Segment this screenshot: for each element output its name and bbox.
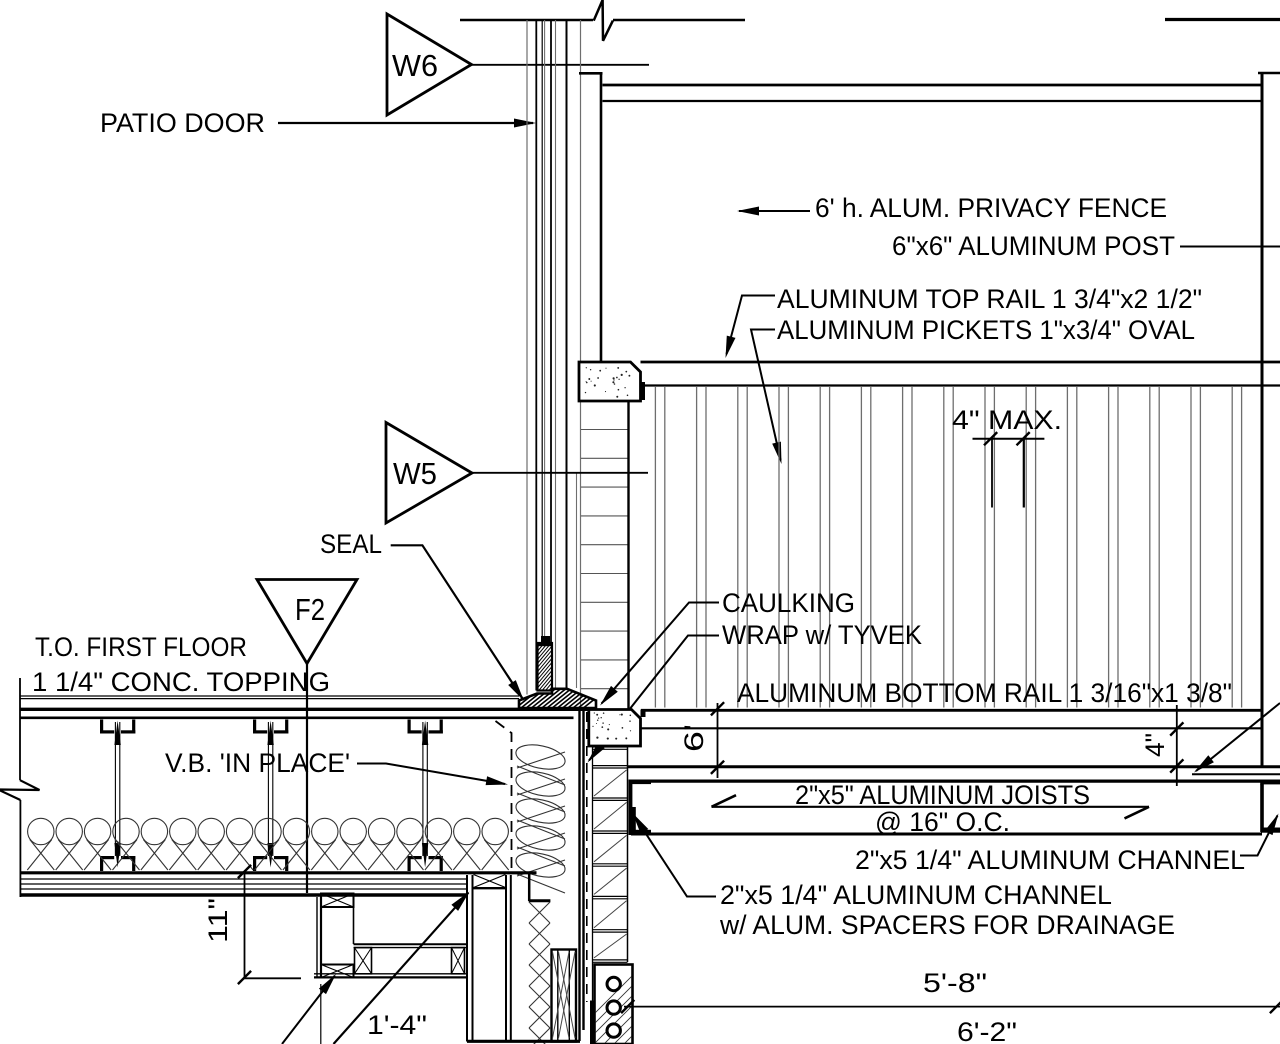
svg-text:1 1/4" CONC. TOPPING: 1 1/4" CONC. TOPPING — [32, 667, 330, 697]
svg-text:11": 11" — [203, 898, 233, 943]
svg-text:5'-8": 5'-8" — [923, 968, 987, 998]
svg-text:T.O. FIRST FLOOR: T.O. FIRST FLOOR — [35, 632, 247, 662]
svg-text:W6: W6 — [392, 48, 438, 83]
svg-text:2"x5" ALUMINUM JOISTS: 2"x5" ALUMINUM JOISTS — [795, 780, 1090, 810]
svg-text:W5: W5 — [393, 456, 437, 491]
svg-text:6' h. ALUM. PRIVACY FENCE: 6' h. ALUM. PRIVACY FENCE — [815, 193, 1167, 223]
svg-text:ALUMINUM TOP RAIL 1 3/4"x2 1/2: ALUMINUM TOP RAIL 1 3/4"x2 1/2" — [777, 284, 1202, 314]
svg-text:6': 6' — [679, 724, 709, 752]
svg-text:SEAL: SEAL — [320, 529, 382, 559]
svg-text:4": 4" — [1140, 733, 1170, 757]
svg-text:ALUMINUM BOTTOM RAIL 1 3/16"x1: ALUMINUM BOTTOM RAIL 1 3/16"x1 3/8" — [737, 678, 1232, 708]
svg-text:WRAP w/ TYVEK: WRAP w/ TYVEK — [722, 620, 922, 650]
svg-text:6'-2": 6'-2" — [957, 1017, 1017, 1044]
svg-text:ALUMINUM PICKETS 1"x3/4" OVAL: ALUMINUM PICKETS 1"x3/4" OVAL — [777, 315, 1195, 345]
svg-text:2"x5 1/4" ALUMINUM CHANNEL: 2"x5 1/4" ALUMINUM CHANNEL — [855, 845, 1245, 875]
svg-text:w/ ALUM. SPACERS FOR DRAINAGE: w/ ALUM. SPACERS FOR DRAINAGE — [719, 910, 1175, 940]
svg-text:CAULKING: CAULKING — [722, 588, 855, 618]
svg-text:F2: F2 — [295, 592, 325, 627]
svg-text:6"x6" ALUMINUM POST: 6"x6" ALUMINUM POST — [892, 231, 1175, 261]
svg-text:@ 16" O.C.: @ 16" O.C. — [875, 807, 1010, 837]
svg-text:PATIO DOOR: PATIO DOOR — [100, 108, 265, 138]
svg-text:1'-4": 1'-4" — [367, 1010, 427, 1040]
svg-text:4" MAX.: 4" MAX. — [952, 405, 1062, 435]
svg-text:V.B. 'IN PLACE': V.B. 'IN PLACE' — [165, 748, 350, 778]
svg-text:2"x5 1/4" ALUMINUM CHANNEL: 2"x5 1/4" ALUMINUM CHANNEL — [720, 880, 1112, 910]
